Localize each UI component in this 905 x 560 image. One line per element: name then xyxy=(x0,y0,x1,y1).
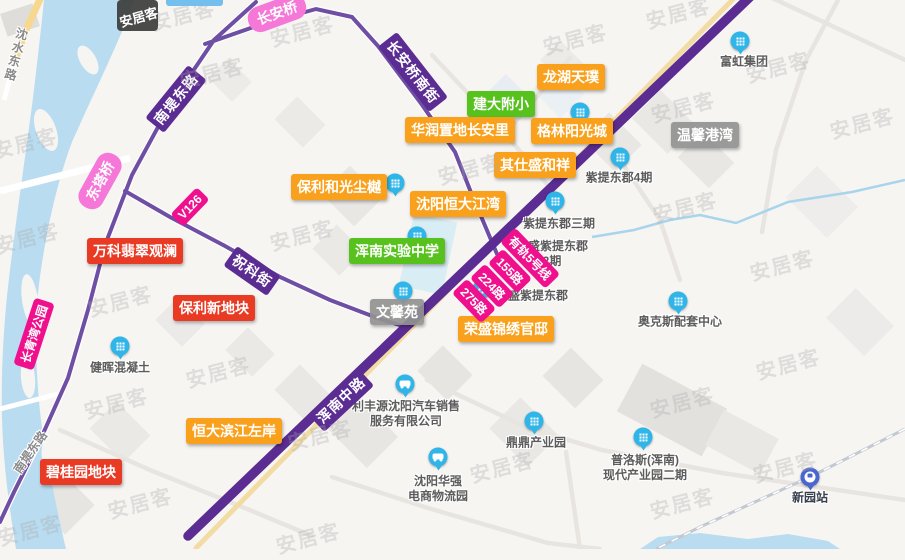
poi-label-jianhui: 健晖混凝土 xyxy=(90,361,150,376)
place-label-longhu[interactable]: 龙湖天璞 xyxy=(537,64,605,90)
pill-changqingwan: 长青湾公园 xyxy=(13,297,55,370)
building-icon[interactable] xyxy=(525,412,544,431)
poi-label-fuhong: 富虹集团 xyxy=(720,55,768,70)
building-icon[interactable] xyxy=(611,148,630,167)
building-icon xyxy=(399,287,408,296)
poi-label-line: 健晖混凝土 xyxy=(90,361,150,376)
place-label-gelin[interactable]: 格林阳光城 xyxy=(531,118,613,144)
place-label-hunnanschool[interactable]: 浑南实验中学 xyxy=(349,238,445,264)
place-label-hengdabinjiang[interactable]: 恒大滨江左岸 xyxy=(186,418,282,444)
pill-changanqiao: 长安桥 xyxy=(244,0,309,35)
place-label-baoliheguang[interactable]: 保利和光尘樾 xyxy=(291,174,387,200)
car-icon[interactable] xyxy=(429,448,448,467)
place-label-jianda[interactable]: 建大附小 xyxy=(467,91,535,117)
poi-label-line: 富虹集团 xyxy=(720,55,768,70)
car-icon xyxy=(400,381,411,387)
building-icon xyxy=(576,108,585,117)
watermark-text: 安居客 xyxy=(646,479,717,524)
watermark-text: 安居客 xyxy=(0,506,66,551)
watermark-text: 安居客 xyxy=(826,99,897,144)
poi-label-line: 普洛斯(浑南) xyxy=(603,453,687,468)
poi-label-line: 电商物流园 xyxy=(408,489,468,504)
watermark-text: 安居客 xyxy=(104,479,175,524)
place-label-huarun[interactable]: 华润置地长安里 xyxy=(405,117,515,143)
road-label-changanqiaonanjie: 长安桥南街 xyxy=(378,32,448,112)
poi-label-zidong4: 紫提东郡4期 xyxy=(586,171,653,186)
watermark-text: 安居客 xyxy=(272,514,343,559)
road-label-shenshui: 沈水东路 xyxy=(1,26,32,84)
poi-label-line: 沈阳华强 xyxy=(408,474,468,489)
poi-label-zidong3: 紫提东郡三期 xyxy=(523,217,595,232)
poi-label-line: 奥克斯配套中心 xyxy=(638,315,722,330)
building-icon[interactable] xyxy=(386,174,405,193)
watermark-text: 安居客 xyxy=(0,119,61,164)
place-label-wenxingangwan[interactable]: 温馨港湾 xyxy=(671,122,739,148)
building-icon[interactable] xyxy=(394,282,413,301)
watermark-text: 安居客 xyxy=(752,340,823,385)
poi-label-xinyuan: 新园站 xyxy=(792,491,828,506)
watermark-text: 安居客 xyxy=(0,214,63,259)
building-icon xyxy=(674,297,683,306)
map-canvas[interactable]: 富虹集团紫提东郡4期紫提东郡三期荣盛紫提东郡2期荣盛紫提东郡奥克斯配套中心健晖混… xyxy=(0,0,905,549)
watermark-text: 安居客 xyxy=(746,241,817,286)
poi-label-line: 鼎鼎产业园 xyxy=(506,436,566,451)
building-icon xyxy=(391,179,400,188)
poi-label-line: 新园站 xyxy=(792,491,828,506)
poi-label-line: 服务有限公司 xyxy=(352,414,460,429)
poi-label-huaqiang: 沈阳华强电商物流园 xyxy=(408,474,468,504)
watermark-text: 安居客 xyxy=(642,0,713,35)
pill-v126: V126 xyxy=(170,187,209,227)
place-label-biguiyuan[interactable]: 碧桂园地块 xyxy=(40,459,122,485)
place-label-rongshengjinxiu[interactable]: 荣盛锦绣官邸 xyxy=(458,316,554,342)
building-icon xyxy=(639,433,648,442)
place-label-wanke[interactable]: 万科翡翠观澜 xyxy=(87,238,183,264)
building-icon[interactable] xyxy=(546,192,565,211)
poi-label-line: 紫提东郡4期 xyxy=(586,171,653,186)
building-icon[interactable] xyxy=(669,292,688,311)
poi-label-puluosi: 普洛斯(浑南)现代产业园二期 xyxy=(603,453,687,483)
building-icon xyxy=(736,37,745,46)
poi-label-aokesi: 奥克斯配套中心 xyxy=(638,315,722,330)
car-icon xyxy=(433,454,444,460)
building-icon xyxy=(551,197,560,206)
poi-label-line: 利丰源沈阳汽车销售 xyxy=(352,399,460,414)
anjuke-logo-text: 安居客 xyxy=(117,2,158,31)
pill-dongtaqiao: 东塔桥 xyxy=(74,148,126,213)
watermark-strip xyxy=(166,0,223,6)
building-icon[interactable] xyxy=(634,428,653,447)
building-icon xyxy=(116,342,125,351)
building-icon xyxy=(616,153,625,162)
watermark-text: 安居客 xyxy=(539,15,610,60)
place-label-wenxinyuan[interactable]: 文馨苑 xyxy=(370,299,424,325)
place-label-qishi[interactable]: 其仕盛和祥 xyxy=(494,152,576,178)
road-label-zhuke: 祝科街 xyxy=(223,246,280,296)
building-icon[interactable] xyxy=(111,337,130,356)
watermark-text: 安居客 xyxy=(649,183,720,228)
place-label-hengdajiangwan[interactable]: 沈阳恒大江湾 xyxy=(410,191,506,217)
poi-label-dingding: 鼎鼎产业园 xyxy=(506,436,566,451)
building-icon[interactable] xyxy=(731,32,750,51)
watermark-text: 安居客 xyxy=(182,348,253,393)
train-icon[interactable] xyxy=(801,468,820,487)
building-icon xyxy=(530,417,539,426)
poi-label-line: 现代产业园二期 xyxy=(603,468,687,483)
watermark-text: 安居客 xyxy=(266,211,337,256)
watermark-text: 安居客 xyxy=(84,277,155,322)
place-label-baolixin[interactable]: 保利新地块 xyxy=(173,295,255,321)
train-icon xyxy=(805,472,816,483)
watermark-text: 安居客 xyxy=(646,378,717,423)
car-icon[interactable] xyxy=(396,375,415,394)
poi-label-lifengyuan: 利丰源沈阳汽车销售服务有限公司 xyxy=(352,399,460,429)
watermark-text: 安居客 xyxy=(80,379,151,424)
poi-label-line: 紫提东郡三期 xyxy=(523,217,595,232)
road-label-nandi: 南堤东路 xyxy=(145,65,206,133)
anjuke-logo-watermark: 安居客 xyxy=(117,0,158,31)
